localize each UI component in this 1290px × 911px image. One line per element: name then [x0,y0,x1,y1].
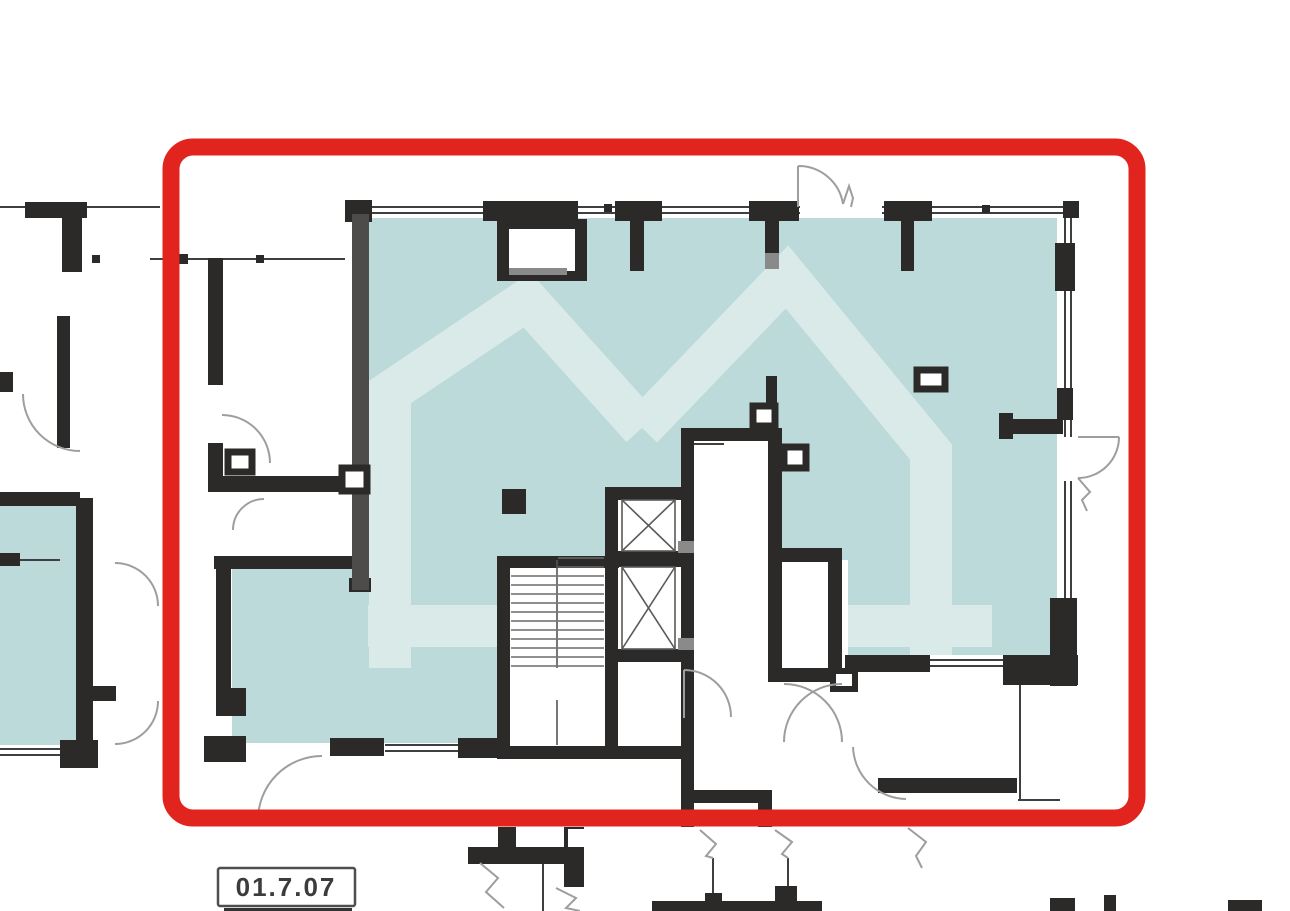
top-door-opening [800,203,882,216]
unit-label[interactable]: 01.7.07 [236,872,337,902]
neighbor-unit-fill [0,505,78,745]
elevator-shaft-2-icon [622,567,675,649]
stairs-icon [511,558,604,745]
partition-wall [352,214,369,590]
floorplan-svg: 01.7.07 [0,0,1290,911]
right-door-opening [1062,437,1074,481]
floorplan-canvas: 01.7.07 [0,0,1290,911]
unit-label-box[interactable]: 01.7.07 [218,868,355,911]
elevator-shaft-1-icon [622,500,675,551]
elevator-shafts [622,500,675,649]
